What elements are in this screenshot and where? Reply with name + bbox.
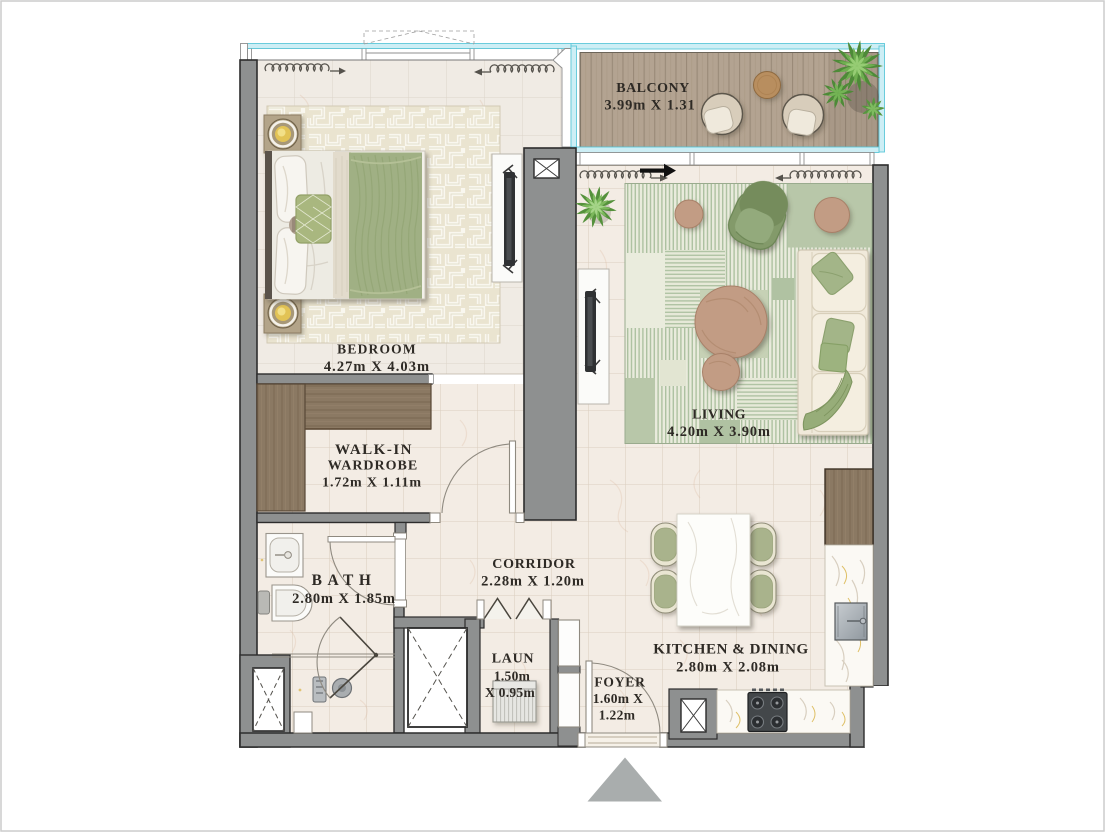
svg-text:BATH: BATH <box>312 572 377 589</box>
svg-text:LIVING: LIVING <box>692 408 746 423</box>
svg-text:1.60m X: 1.60m X <box>593 691 643 706</box>
svg-text:2.80m X 2.08m: 2.80m X 2.08m <box>676 660 780 676</box>
svg-text:KITCHEN & DINING: KITCHEN & DINING <box>653 642 808 658</box>
svg-text:WALK-IN: WALK-IN <box>335 442 413 458</box>
svg-text:FOYER: FOYER <box>594 675 645 690</box>
svg-text:X 0.95m: X 0.95m <box>485 685 536 700</box>
svg-text:LAUN: LAUN <box>492 652 534 667</box>
svg-text:3.99m X 1.31: 3.99m X 1.31 <box>604 98 695 114</box>
svg-text:BALCONY: BALCONY <box>616 81 690 96</box>
svg-text:BEDROOM: BEDROOM <box>337 342 417 357</box>
svg-text:4.20m X 3.90m: 4.20m X 3.90m <box>667 424 771 440</box>
svg-text:2.80m X 1.85m: 2.80m X 1.85m <box>292 591 396 607</box>
svg-text:1.72m X 1.11m: 1.72m X 1.11m <box>322 476 422 491</box>
svg-text:1.22m: 1.22m <box>599 708 636 723</box>
svg-text:WARDROBE: WARDROBE <box>328 459 418 474</box>
svg-text:4.27m X 4.03m: 4.27m X 4.03m <box>324 359 430 375</box>
svg-text:CORRIDOR: CORRIDOR <box>492 557 576 572</box>
svg-text:2.28m X 1.20m: 2.28m X 1.20m <box>481 574 585 590</box>
svg-text:1.50m: 1.50m <box>494 669 531 684</box>
